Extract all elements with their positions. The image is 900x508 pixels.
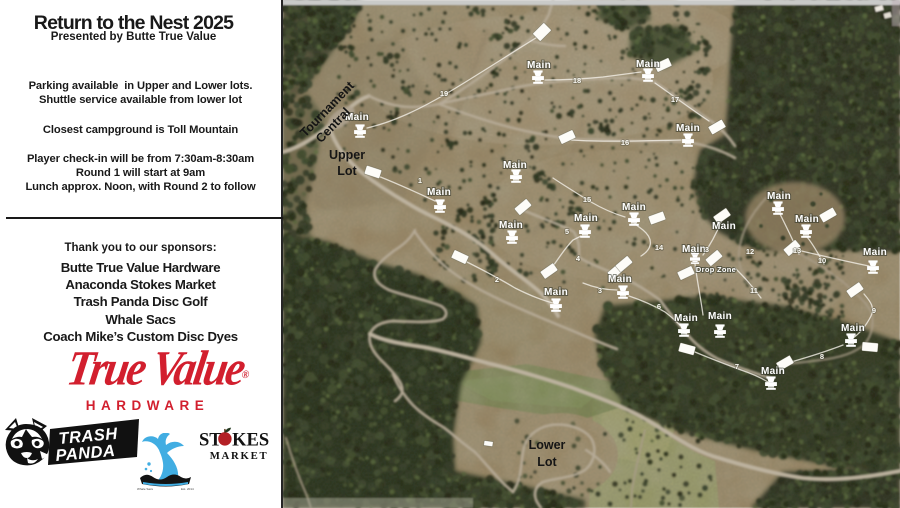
svg-text:PANDA: PANDA bbox=[55, 442, 116, 465]
svg-text:Whale Sacs: Whale Sacs bbox=[137, 487, 154, 491]
svg-text:Est. 2014: Est. 2014 bbox=[181, 487, 194, 491]
svg-text:KES: KES bbox=[232, 431, 269, 451]
svg-text:MARKET: MARKET bbox=[210, 450, 269, 462]
